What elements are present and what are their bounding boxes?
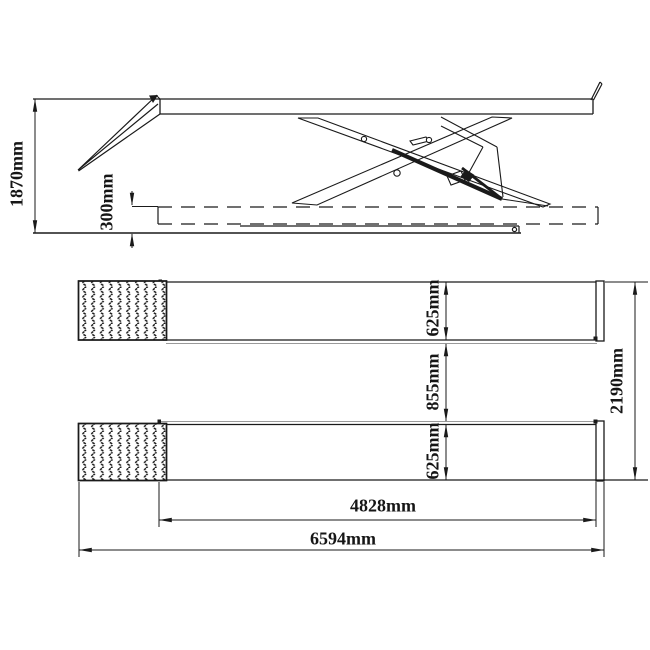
upper-platform-end-cap bbox=[596, 281, 604, 341]
upper-platform bbox=[79, 280, 605, 344]
platform-body bbox=[160, 99, 593, 114]
label-platform-gap: 855mm bbox=[423, 354, 444, 411]
scissor-lift-dimension-drawing: 1870mm 300mm 625mm 855mm 625mm 2190mm 48… bbox=[0, 0, 650, 650]
lowered-position-outline bbox=[158, 207, 598, 224]
pivot-circle bbox=[426, 137, 431, 142]
drawing-linework bbox=[0, 0, 650, 650]
hydraulic-cylinder bbox=[392, 150, 502, 199]
lower-ramp-tread bbox=[79, 424, 167, 481]
label-min-height: 300mm bbox=[97, 174, 118, 231]
lower-platform bbox=[79, 420, 649, 482]
label-overall-width: 2190mm bbox=[607, 348, 628, 414]
label-platform-width-lower: 625mm bbox=[423, 423, 444, 480]
upper-ramp-tread bbox=[79, 281, 167, 340]
label-overall-height: 1870mm bbox=[7, 141, 28, 207]
pivot-circle bbox=[394, 170, 400, 176]
side-view bbox=[33, 82, 602, 233]
drive-ramp-side bbox=[78, 96, 160, 171]
label-overall-length: 6594mm bbox=[310, 529, 376, 550]
scissor-mechanism bbox=[292, 117, 550, 207]
pivot-circle bbox=[361, 136, 366, 141]
label-platform-width-upper: 625mm bbox=[423, 280, 444, 337]
wheel-stop-flap bbox=[591, 82, 602, 100]
label-platform-length: 4828mm bbox=[350, 496, 416, 517]
lower-platform-end-cap bbox=[596, 421, 604, 481]
plan-view bbox=[79, 280, 649, 482]
base-roller bbox=[512, 227, 516, 231]
scissor-arm-a bbox=[292, 117, 512, 205]
